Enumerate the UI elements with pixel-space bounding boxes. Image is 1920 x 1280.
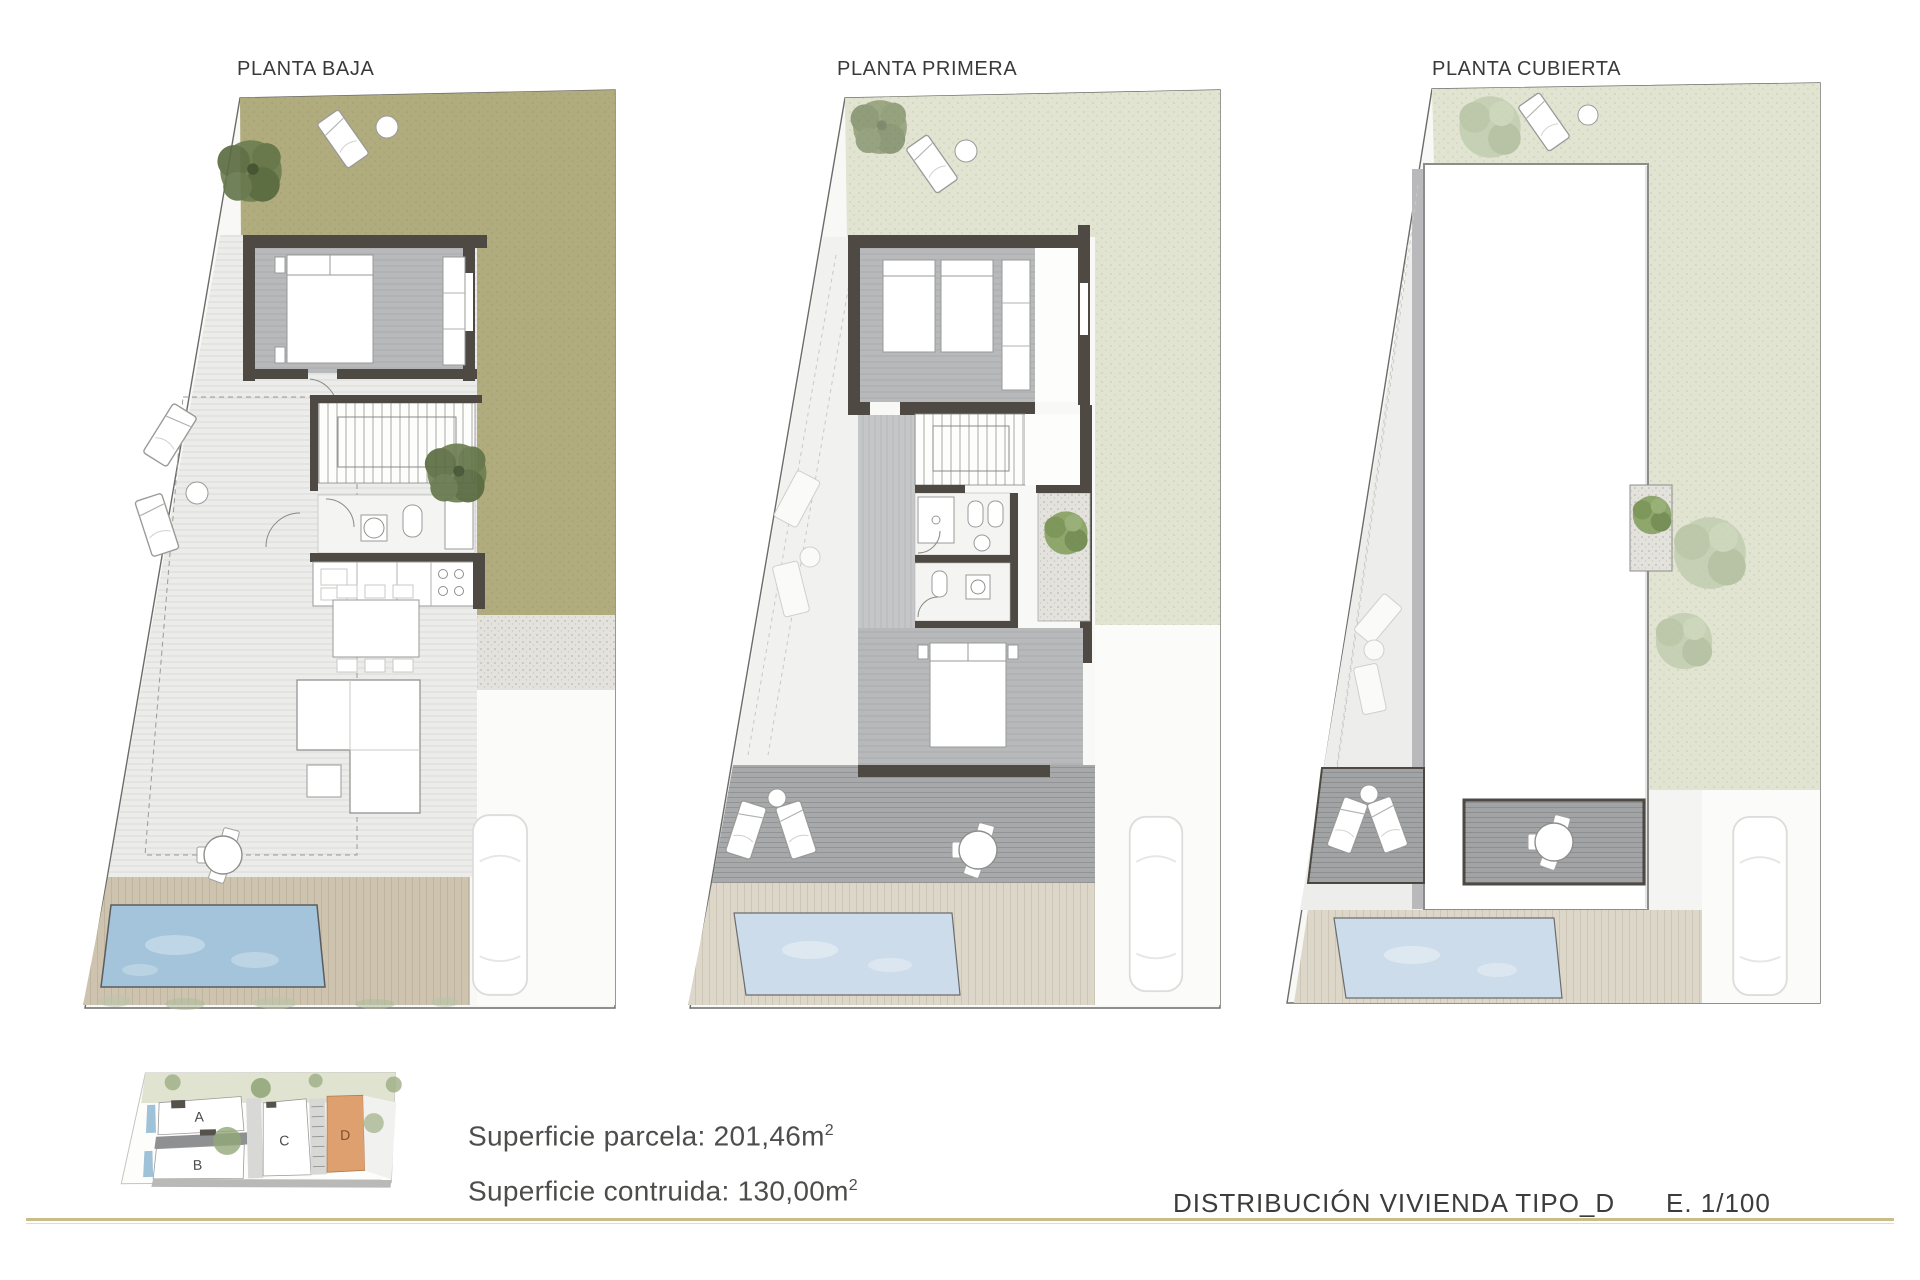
sink	[974, 535, 990, 551]
wardrobe	[1002, 260, 1030, 390]
dining-set	[333, 585, 419, 672]
swimming-pool	[1334, 918, 1562, 998]
lounger-terrace	[1308, 768, 1424, 883]
sofa	[297, 680, 420, 813]
wall-partition	[337, 369, 477, 379]
titleblock-rule	[26, 1218, 1894, 1221]
wall-top	[243, 235, 487, 248]
window	[1080, 283, 1088, 335]
bed-double	[918, 643, 1018, 747]
wall-left	[243, 235, 255, 381]
side-table	[1360, 785, 1378, 803]
landing	[1035, 248, 1083, 402]
upper-terrace	[712, 765, 1095, 883]
ghost-table	[1364, 640, 1384, 660]
shower	[445, 499, 473, 549]
site-path	[246, 1098, 263, 1178]
coffee-table	[307, 765, 341, 797]
site-path-hatched	[309, 1098, 327, 1174]
unit-a-label: A	[194, 1109, 204, 1125]
tree-icon	[851, 100, 907, 154]
ghost-table	[800, 547, 820, 567]
mini-wall	[266, 1102, 276, 1108]
bathroom-2	[915, 563, 1010, 621]
unit-c-label: C	[279, 1132, 290, 1148]
sheet-scale: E. 1/100	[1666, 1188, 1771, 1219]
surface-construida-line: Superficie contruida: 130,00m2	[468, 1161, 858, 1216]
bidet	[988, 501, 1003, 527]
sheet-title: DISTRIBUCIÓN VIVIENDA TIPO_D	[1173, 1188, 1615, 1219]
mini-wall	[171, 1100, 185, 1108]
shower	[918, 497, 954, 543]
paving	[1648, 790, 1702, 910]
toilet	[403, 505, 422, 537]
tree-icon	[425, 444, 487, 503]
void-terrace-below	[733, 237, 858, 765]
tree-icon	[1633, 496, 1671, 534]
swimming-pool	[101, 905, 325, 987]
floor-plan-planta-cubierta	[1262, 65, 1847, 1015]
garden-side-table	[955, 140, 977, 162]
window	[465, 273, 473, 331]
car	[473, 815, 527, 995]
floor-plan-planta-baja	[45, 65, 630, 1015]
surface-summary: Superficie parcela: 201,46m2 Superficie …	[468, 1106, 858, 1217]
gravel-courtyard	[1630, 485, 1672, 571]
garden-side-table	[376, 116, 398, 138]
toilet	[932, 571, 947, 597]
roof-terrace	[1464, 800, 1644, 884]
tree-icon	[1656, 613, 1712, 669]
terrace-parapet	[858, 765, 1050, 777]
tree-icon	[217, 140, 281, 201]
car	[1130, 817, 1182, 991]
toilet	[968, 501, 983, 527]
bed-single	[941, 260, 993, 352]
roof	[1424, 164, 1648, 910]
wall-top	[848, 235, 1090, 248]
tree-icon	[1674, 517, 1746, 589]
titleblock-rule-shadow	[26, 1223, 1894, 1224]
unit-d-label: D	[340, 1127, 351, 1143]
surface-parcela-line: Superficie parcela: 201,46m2	[468, 1106, 858, 1161]
side-table	[186, 482, 208, 504]
staircase	[915, 414, 1083, 485]
bed-double	[275, 255, 373, 363]
unit-b-label: B	[193, 1157, 203, 1173]
wardrobe	[443, 257, 465, 365]
site-east-strip	[363, 1094, 398, 1180]
garden-side-table	[1578, 105, 1598, 125]
side-table	[768, 789, 786, 807]
tree-icon	[1044, 511, 1087, 554]
gravel-courtyard	[1036, 485, 1092, 621]
mini-wall	[200, 1129, 216, 1135]
wall-left	[848, 235, 860, 415]
bed-single	[883, 260, 935, 352]
plan-sheet: { "document": {"background": "#ffffff"},…	[0, 0, 1920, 1280]
tree-icon	[1459, 96, 1520, 157]
floor-plan-planta-primera	[650, 65, 1235, 1015]
sink	[321, 569, 347, 585]
wall-partition	[250, 369, 308, 379]
car	[1733, 817, 1787, 995]
gravel-texture	[477, 615, 615, 690]
bathroom	[310, 495, 485, 562]
swimming-pool	[734, 913, 960, 995]
site-key-map: A B C D	[112, 1058, 412, 1208]
